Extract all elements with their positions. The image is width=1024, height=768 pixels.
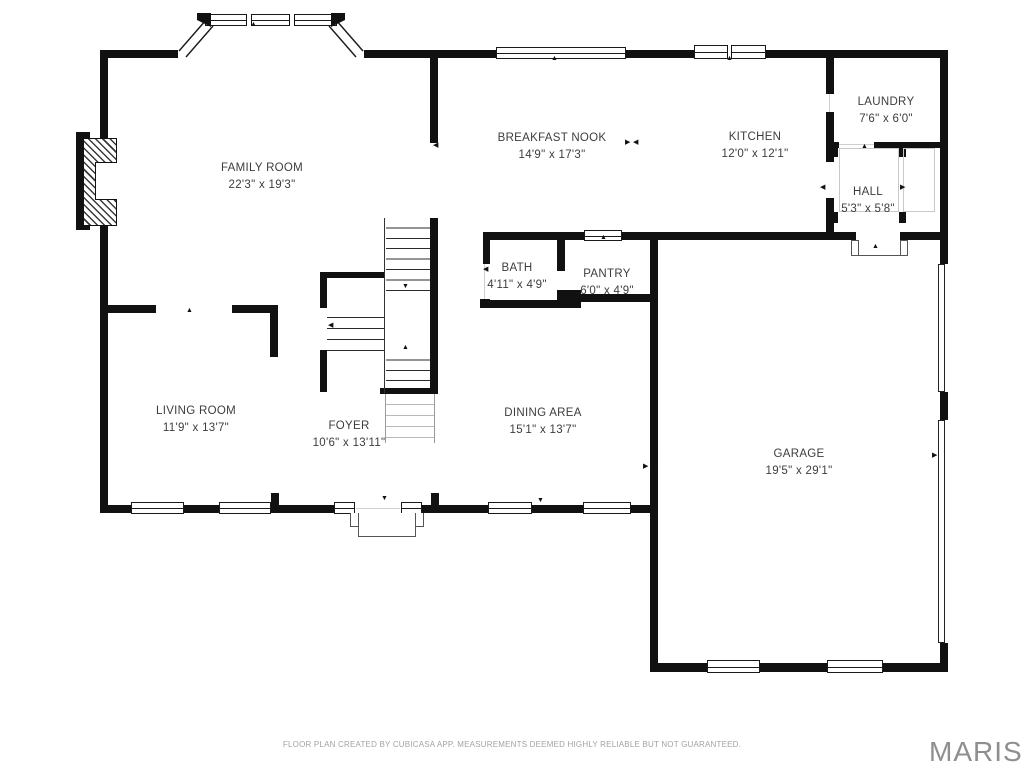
door-tick: ▶: [900, 184, 905, 191]
wall: [431, 493, 439, 506]
room-dimensions: 4'11" x 4'9": [487, 277, 546, 294]
wall: [831, 146, 838, 157]
wall: [440, 50, 496, 58]
window: [488, 502, 532, 514]
door-tick: ◀: [433, 142, 438, 149]
staircase-winders: [327, 307, 384, 351]
wall: [271, 493, 279, 506]
room-name: FAMILY ROOM: [221, 160, 303, 177]
door-opening-line: [839, 144, 874, 145]
room-dimensions: 5'3" x 5'8": [841, 201, 895, 218]
window: [496, 47, 626, 59]
door-tick: ▲: [250, 21, 257, 28]
room-label-pantry: PANTRY 6'0" x 4'9": [580, 266, 634, 299]
wall: [320, 272, 384, 278]
room-dimensions: 19'5" x 29'1": [766, 463, 833, 480]
room-dimensions: 6'0" x 4'9": [580, 283, 634, 300]
stairs-down-arrow: ▼: [402, 283, 409, 290]
door-tick: ▼: [381, 495, 388, 502]
door-tick: ▲: [186, 307, 193, 314]
room-name: BATH: [487, 260, 546, 277]
garage-door: [938, 420, 945, 643]
room-dimensions: 10'6" x 13'11": [313, 435, 386, 452]
wall: [100, 50, 108, 513]
stairs-up-arrow: ▲: [402, 344, 409, 351]
door-tick: ◀: [652, 451, 657, 458]
maris-logo: MARIS: [929, 736, 1023, 768]
wall: [100, 505, 131, 513]
room-name: FOYER: [313, 418, 386, 435]
rear-entry-steps-inner: [858, 240, 901, 256]
window: [219, 502, 271, 514]
door-tick: ◀: [820, 184, 825, 191]
wall: [766, 50, 948, 58]
window: [707, 660, 760, 673]
wall: [422, 505, 488, 513]
window-mullion: [289, 14, 295, 26]
room-name: PANTRY: [580, 266, 634, 283]
door-tick: ▲: [551, 55, 558, 62]
wall: [364, 50, 440, 58]
wall: [900, 232, 948, 240]
wall: [626, 50, 694, 58]
room-name: LAUNDRY: [858, 94, 915, 111]
door-tick: ▼: [537, 497, 544, 504]
staircase-lower-run: [386, 350, 430, 388]
wall: [270, 305, 278, 357]
wall: [826, 58, 834, 94]
room-dimensions: 11'9" x 13'7": [156, 420, 236, 437]
room-label-living-room: LIVING ROOM 11'9" x 13'7": [156, 403, 236, 436]
wall: [184, 505, 219, 513]
room-label-hall: HALL 5'3" x 5'8": [841, 184, 895, 217]
door-tick: ▶: [558, 265, 563, 272]
door-opening-line: [829, 94, 830, 112]
stairs-turn-arrow: ◀: [328, 322, 333, 329]
wall: [271, 505, 334, 513]
door-tick: ▲: [600, 234, 607, 241]
room-label-bath: BATH 4'11" x 4'9": [487, 260, 546, 293]
wall: [940, 643, 948, 672]
room-dimensions: 15'1" x 13'7": [504, 422, 581, 439]
wall: [108, 305, 156, 313]
hall-side-closet: [903, 148, 935, 212]
disclaimer-text: FLOOR PLAN CREATED BY CUBICASA APP. MEAS…: [283, 740, 741, 749]
wall: [483, 232, 584, 240]
wall: [320, 350, 327, 392]
door-tick: ▶: [625, 139, 630, 146]
room-dimensions: 22'3" x 19'3": [221, 177, 303, 194]
staircase-upper-run: [386, 218, 430, 292]
stair-edge-line: [384, 218, 385, 393]
room-label-kitchen: KITCHEN 12'0" x 12'1": [722, 129, 789, 162]
fireplace-firebox: [95, 162, 117, 200]
room-label-laundry: LAUNDRY 7'6" x 6'0": [858, 94, 915, 127]
staircase-upper-flight-outline: [385, 394, 435, 443]
front-porch-inner: [358, 513, 416, 537]
room-label-foyer: FOYER 10'6" x 13'11": [313, 418, 386, 451]
room-name: DINING AREA: [504, 405, 581, 422]
wall: [100, 50, 178, 58]
window: [205, 14, 337, 26]
window: [583, 502, 631, 514]
door-tick: ◀: [633, 139, 638, 146]
steps-up-arrow: ▲: [872, 243, 879, 250]
room-label-dining-area: DINING AREA 15'1" x 13'7": [504, 405, 581, 438]
room-name: HALL: [841, 184, 895, 201]
floor-plan: ▼ ▲ ◀ ◀ ▶ ▼ ▲ ▲ ◀ ▶ ▲ ▼ ▼ ▲ ◀ ▶ ▲ ▲ ▲ ◀ …: [0, 0, 1024, 768]
wall: [430, 50, 438, 143]
wall: [557, 290, 581, 308]
door-opening-line: [356, 508, 400, 509]
room-name: BREAKFAST NOOK: [498, 130, 607, 147]
wall: [532, 505, 583, 513]
door-tick: ▲: [861, 143, 868, 150]
window: [131, 502, 184, 514]
wall: [940, 392, 948, 420]
wall: [320, 272, 327, 308]
door-tick: ▶: [932, 452, 937, 459]
garage-door: [938, 264, 945, 392]
room-dimensions: 12'0" x 12'1": [722, 146, 789, 163]
wall: [430, 218, 438, 393]
wall: [622, 232, 856, 240]
wall: [899, 212, 906, 223]
room-name: LIVING ROOM: [156, 403, 236, 420]
room-dimensions: 14'9" x 17'3": [498, 147, 607, 164]
wall: [631, 505, 658, 513]
wall: [658, 663, 940, 672]
door-tick: ▶: [643, 463, 648, 470]
wall: [483, 300, 564, 308]
window: [827, 660, 883, 673]
room-dimensions: 7'6" x 6'0": [858, 111, 915, 128]
door-tick: ▲: [726, 55, 733, 62]
room-label-breakfast-nook: BREAKFAST NOOK 14'9" x 17'3": [498, 130, 607, 163]
room-name: KITCHEN: [722, 129, 789, 146]
room-name: GARAGE: [766, 446, 833, 463]
wall: [831, 212, 838, 223]
room-label-garage: GARAGE 19'5" x 29'1": [766, 446, 833, 479]
room-label-family-room: FAMILY ROOM 22'3" x 19'3": [221, 160, 303, 193]
